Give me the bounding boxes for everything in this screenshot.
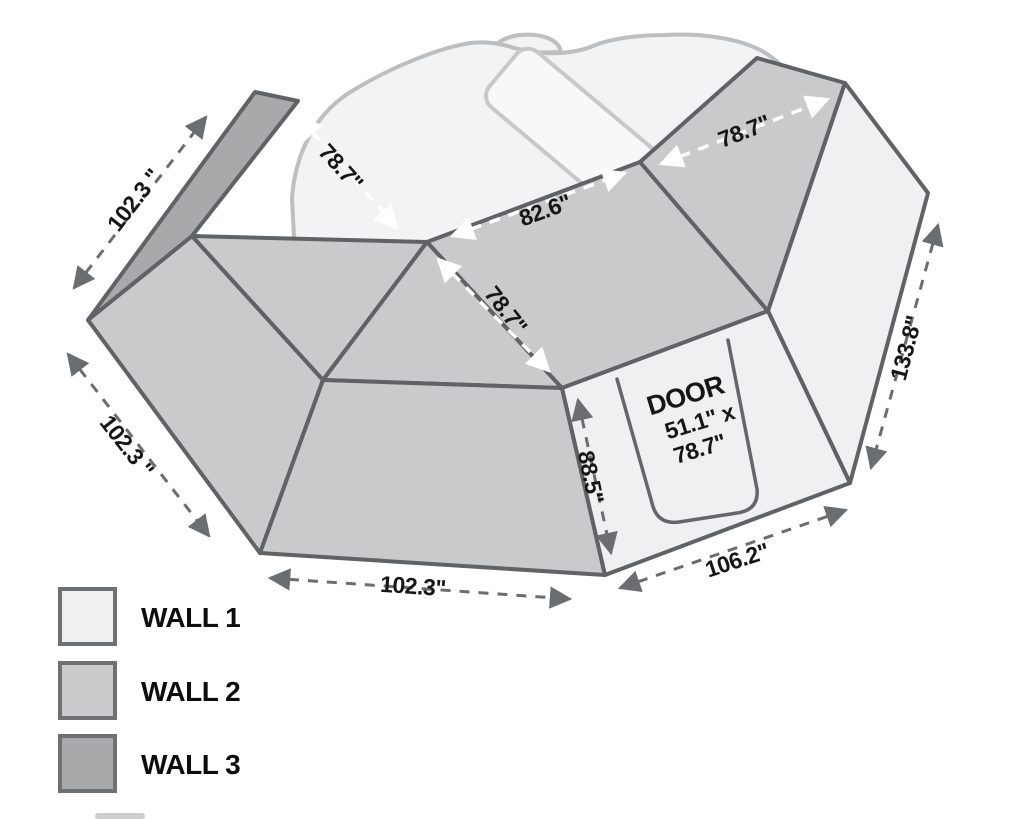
left-edge-dim: 102.3 " xyxy=(95,410,159,482)
legend-label-wall-2: WALL 2 xyxy=(141,676,240,707)
diagram-stage: 102.3 " 102.3 " 102.3" 106.2" 133.8" 88.… xyxy=(0,0,1024,819)
legend-swatch-wall-1 xyxy=(60,589,115,644)
cropped-bottom-element xyxy=(95,813,145,819)
legend-swatch-wall-3 xyxy=(60,736,115,791)
bottom-right-edge-dim: 106.2" xyxy=(702,538,772,583)
awning-diagram: 102.3 " 102.3 " 102.3" 106.2" 133.8" 88.… xyxy=(0,0,1024,819)
legend-swatch-wall-2 xyxy=(60,663,115,718)
legend-label-wall-1: WALL 1 xyxy=(141,602,240,633)
legend-label-wall-3: WALL 3 xyxy=(141,749,240,780)
wall-2-front-lower-panel xyxy=(260,380,605,575)
legend: WALL 1 WALL 2 WALL 3 xyxy=(60,589,240,791)
bottom-edge-dim: 102.3" xyxy=(379,571,446,602)
